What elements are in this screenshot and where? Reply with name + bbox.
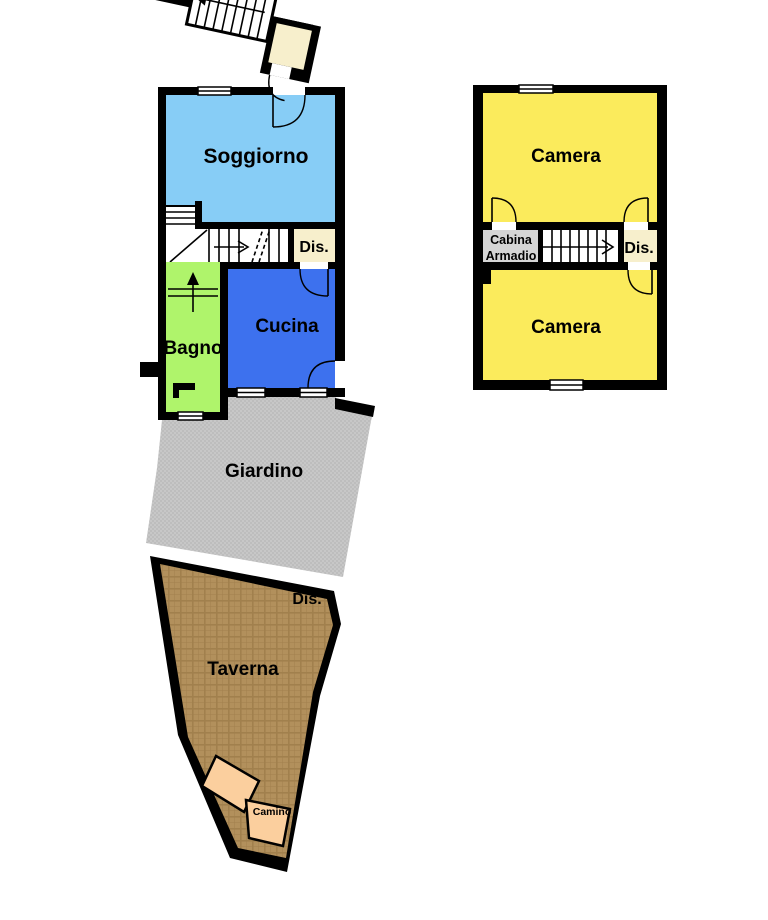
floor-plan-page: Giardino Soggiorno [0,0,768,920]
cucina-door-opening [300,262,328,269]
label-giardino: Giardino [225,461,303,482]
label-cabina-line2: Armadio [486,249,537,263]
window [237,388,265,397]
window [300,388,327,397]
dis-first-door-opening-top [624,222,648,230]
stairs-first-floor [543,230,618,265]
label-camino: Camino [253,806,292,818]
entrance-door-opening [273,87,305,95]
stair-wall-stub [195,201,202,229]
window [178,412,203,420]
window [550,380,583,390]
label-bagno: Bagno [163,338,222,359]
label-camera-top: Camera [531,146,601,167]
room-giardino [146,397,374,577]
cabina-door-opening [492,222,516,230]
window [519,85,553,93]
label-taverna: Taverna [207,659,279,680]
dis-first-door-opening-bottom [628,262,650,270]
label-soggiorno: Soggiorno [204,145,309,168]
first-floor-building: Camera Cabina Armadio [473,85,667,390]
label-cucina: Cucina [255,316,319,337]
stairs-taverna [186,0,277,41]
wall-stub-bottom-camera [483,270,491,284]
garden-door-opening [335,361,345,388]
label-dis-first: Dis. [624,240,653,257]
floor-plan-svg: Giardino Soggiorno [0,0,768,920]
ground-floor-building: Soggiorno [140,87,345,420]
label-dis-ground: Dis. [299,239,328,256]
window [198,87,231,95]
label-dis-taverna: Dis. [292,591,321,608]
label-camera-bottom: Camera [531,317,601,338]
label-cabina-line1: Cabina [490,233,533,247]
left-wall-pillar [140,362,158,377]
hall-wall [202,222,335,229]
